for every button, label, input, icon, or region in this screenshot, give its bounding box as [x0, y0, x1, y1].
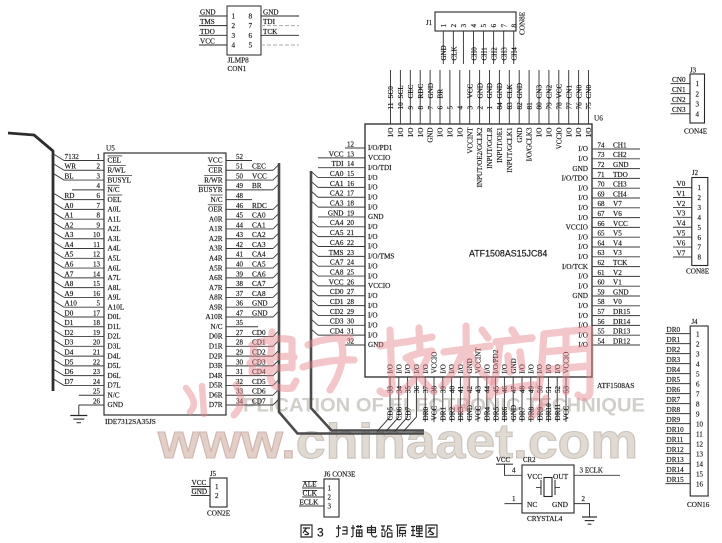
- svg-text:I/O: I/O: [368, 262, 378, 270]
- svg-text:1: 1: [328, 485, 332, 493]
- svg-text:3: 3: [97, 172, 101, 180]
- svg-text:2: 2: [696, 90, 700, 98]
- svg-text:83: 83: [506, 102, 514, 110]
- svg-text:3: 3: [696, 100, 700, 108]
- svg-text:4: 4: [232, 42, 236, 50]
- svg-text:I/O: I/O: [368, 174, 378, 182]
- svg-text:DR3: DR3: [667, 356, 681, 364]
- svg-text:A5: A5: [65, 251, 74, 259]
- svg-text:CON2E: CON2E: [207, 510, 231, 518]
- svg-text:GND: GND: [510, 405, 518, 421]
- svg-text:OUT: OUT: [553, 472, 569, 481]
- svg-text:8: 8: [97, 212, 101, 220]
- svg-text:CD7: CD7: [404, 407, 412, 421]
- svg-text:CA0: CA0: [330, 170, 344, 178]
- svg-text:CON4E: CON4E: [684, 128, 708, 136]
- svg-text:3: 3: [328, 503, 332, 511]
- svg-text:A9: A9: [65, 290, 74, 298]
- svg-text:D0L: D0L: [108, 313, 121, 321]
- svg-text:62: 62: [598, 259, 606, 267]
- svg-text:DR1: DR1: [440, 407, 448, 421]
- svg-text:A0: A0: [65, 202, 74, 210]
- svg-text:VCC: VCC: [563, 406, 571, 421]
- svg-text:CA6: CA6: [330, 239, 344, 247]
- svg-text:V2: V2: [613, 269, 622, 277]
- svg-text:CD6: CD6: [252, 388, 266, 396]
- svg-text:D3L: D3L: [108, 343, 121, 351]
- svg-text:9: 9: [97, 221, 101, 229]
- svg-text:V3: V3: [613, 249, 622, 257]
- svg-text:BUSYL: BUSYL: [108, 176, 132, 184]
- svg-text:DR6: DR6: [667, 386, 681, 394]
- svg-text:CN0: CN0: [672, 76, 686, 84]
- svg-text:CD5: CD5: [252, 378, 266, 386]
- svg-text:10: 10: [696, 420, 704, 428]
- svg-text:RDC: RDC: [252, 202, 267, 210]
- svg-text:V7: V7: [613, 200, 622, 208]
- svg-text:CA5: CA5: [252, 260, 266, 268]
- svg-text:R/WL: R/WL: [108, 166, 126, 174]
- svg-text:CA1: CA1: [330, 180, 344, 188]
- svg-text:V6: V6: [613, 210, 622, 218]
- svg-text:D1L: D1L: [108, 323, 121, 331]
- svg-text:6: 6: [490, 24, 498, 28]
- svg-text:51: 51: [236, 163, 244, 171]
- svg-text:24: 24: [347, 259, 355, 267]
- svg-text:60: 60: [598, 279, 606, 287]
- svg-text:11: 11: [387, 102, 395, 109]
- svg-text:16: 16: [93, 290, 101, 298]
- svg-text:CA3: CA3: [252, 241, 266, 249]
- svg-text:46: 46: [236, 202, 244, 210]
- svg-text:3: 3: [466, 106, 474, 110]
- svg-text:CA8: CA8: [330, 268, 344, 276]
- svg-text:CD1: CD1: [330, 298, 344, 306]
- svg-text:ECLK: ECLK: [585, 468, 603, 475]
- svg-text:A5R: A5R: [209, 264, 223, 272]
- svg-text:A6: A6: [65, 260, 74, 268]
- svg-text:GND: GND: [252, 300, 268, 308]
- svg-text:I/O: I/O: [578, 253, 588, 261]
- svg-text:A4R: A4R: [209, 255, 223, 263]
- svg-text:A9L: A9L: [108, 294, 121, 302]
- svg-text:13: 13: [696, 450, 704, 458]
- svg-text:10: 10: [93, 231, 101, 239]
- svg-text:I/O: I/O: [578, 273, 588, 281]
- svg-text:U5: U5: [106, 145, 115, 153]
- svg-text:VCC: VCC: [252, 172, 267, 180]
- svg-text:2: 2: [232, 22, 236, 30]
- svg-text:DR10: DR10: [545, 403, 553, 421]
- svg-text:TDI: TDI: [332, 160, 345, 168]
- svg-text:1: 1: [696, 80, 700, 88]
- svg-text:13: 13: [347, 150, 355, 158]
- svg-text:29: 29: [347, 308, 355, 316]
- svg-text:I/O: I/O: [578, 282, 588, 290]
- svg-text:50: 50: [236, 172, 244, 180]
- svg-text:RD: RD: [65, 192, 75, 200]
- svg-text:DR5: DR5: [492, 407, 500, 421]
- svg-text:25: 25: [347, 268, 355, 276]
- svg-text:N/C: N/C: [108, 391, 120, 399]
- svg-text:DR15: DR15: [613, 308, 631, 316]
- svg-text:2: 2: [698, 194, 702, 202]
- svg-text:CH4: CH4: [511, 47, 519, 61]
- svg-text:CER: CER: [209, 166, 223, 174]
- svg-text:I/O: I/O: [368, 331, 378, 339]
- svg-text:GND: GND: [613, 161, 629, 169]
- svg-text:12: 12: [93, 251, 101, 259]
- svg-text:14: 14: [696, 460, 704, 468]
- svg-text:D6R: D6R: [209, 391, 223, 399]
- svg-text:3: 3: [460, 24, 468, 28]
- svg-text:I/O: I/O: [546, 128, 554, 137]
- svg-text:A1L: A1L: [108, 215, 121, 223]
- svg-text:BUSYR: BUSYR: [199, 186, 223, 194]
- svg-text:27: 27: [236, 329, 244, 337]
- svg-text:21: 21: [347, 229, 355, 237]
- svg-text:1: 1: [698, 184, 702, 192]
- svg-text:DR13: DR13: [613, 328, 631, 336]
- svg-text:6: 6: [437, 106, 445, 110]
- svg-text:I/O: I/O: [578, 233, 588, 241]
- svg-text:43: 43: [236, 231, 244, 239]
- svg-text:I/O: I/O: [578, 194, 588, 202]
- svg-text:CD5: CD5: [387, 407, 395, 421]
- svg-text:I/O: I/O: [578, 243, 588, 251]
- svg-text:CD7: CD7: [252, 397, 266, 405]
- svg-text:8: 8: [249, 13, 253, 21]
- svg-text:TCK: TCK: [263, 28, 278, 36]
- svg-text:CLK: CLK: [506, 83, 514, 98]
- svg-text:VCC: VCC: [556, 84, 564, 99]
- svg-text:GND: GND: [200, 9, 216, 17]
- svg-text:7: 7: [698, 244, 702, 252]
- svg-text:1: 1: [486, 106, 494, 110]
- svg-text:GND: GND: [572, 292, 588, 300]
- svg-text:GND: GND: [486, 83, 494, 99]
- svg-text:2: 2: [450, 24, 458, 28]
- svg-text:5: 5: [97, 300, 101, 308]
- svg-text:4: 4: [97, 182, 101, 190]
- svg-text:6: 6: [97, 192, 101, 200]
- svg-text:DR9: DR9: [667, 416, 681, 424]
- svg-text:VCCINT: VCCINT: [466, 127, 474, 154]
- svg-text:CA0: CA0: [252, 212, 266, 220]
- svg-text:GND: GND: [516, 128, 524, 143]
- svg-text:J5: J5: [210, 471, 217, 478]
- svg-text:I/O: I/O: [578, 302, 588, 310]
- svg-text:I/O: I/O: [437, 128, 445, 137]
- svg-text:43: 43: [475, 386, 483, 394]
- svg-text:DR15: DR15: [667, 476, 685, 484]
- svg-text:18: 18: [93, 319, 101, 327]
- svg-text:D4R: D4R: [209, 372, 223, 380]
- svg-text:CA3: CA3: [330, 200, 344, 208]
- svg-text:VCCIO: VCCIO: [368, 282, 390, 290]
- svg-text:I/O/TMS: I/O/TMS: [368, 253, 394, 261]
- svg-text:I/O: I/O: [439, 364, 447, 373]
- svg-text:GND: GND: [613, 288, 629, 296]
- svg-text:GND: GND: [552, 500, 569, 509]
- svg-text:CD0: CD0: [252, 329, 266, 337]
- svg-text:21: 21: [93, 349, 101, 357]
- svg-text:I/O/PD1: I/O/PD1: [368, 144, 393, 152]
- svg-text:CA5: CA5: [330, 229, 344, 237]
- svg-text:A2L: A2L: [108, 225, 121, 233]
- svg-text:25: 25: [93, 388, 101, 396]
- svg-text:I/O: I/O: [368, 312, 378, 320]
- svg-text:31: 31: [236, 368, 244, 376]
- svg-text:D7R: D7R: [209, 401, 223, 409]
- svg-text:2: 2: [97, 163, 101, 171]
- svg-text:5: 5: [249, 42, 253, 50]
- svg-text:I/O: I/O: [585, 128, 593, 137]
- svg-text:22: 22: [93, 358, 101, 366]
- svg-text:CH1: CH1: [613, 141, 627, 149]
- svg-text:J6 CON3E: J6 CON3E: [324, 471, 356, 479]
- svg-text:CN2: CN2: [546, 85, 554, 99]
- svg-text:I/O: I/O: [578, 312, 588, 320]
- svg-text:D2R: D2R: [209, 352, 223, 360]
- svg-text:CH4: CH4: [613, 190, 627, 198]
- svg-text:1: 1: [512, 495, 516, 503]
- svg-text:41: 41: [236, 251, 244, 259]
- svg-text:26: 26: [93, 397, 101, 405]
- svg-text:A10R: A10R: [205, 313, 222, 321]
- svg-text:GND: GND: [427, 83, 435, 99]
- svg-text:6: 6: [698, 234, 702, 242]
- svg-text:20: 20: [93, 339, 101, 347]
- svg-text:D1R: D1R: [209, 343, 223, 351]
- svg-text:18: 18: [347, 200, 355, 208]
- svg-text:CH3: CH3: [501, 47, 509, 61]
- svg-text:D3: D3: [65, 339, 74, 347]
- svg-text:CN1: CN1: [565, 85, 573, 99]
- svg-text:CD2: CD2: [330, 308, 344, 316]
- svg-text:OEL: OEL: [108, 196, 122, 204]
- svg-text:DR8: DR8: [667, 406, 681, 414]
- svg-text:2: 2: [476, 106, 484, 110]
- svg-text:A4L: A4L: [108, 245, 121, 253]
- svg-text:17: 17: [93, 309, 101, 317]
- svg-text:CD6: CD6: [396, 407, 404, 421]
- svg-text:ATF1508AS15JC84: ATF1508AS15JC84: [469, 249, 547, 259]
- svg-text:CA1: CA1: [252, 221, 266, 229]
- svg-text:D7L: D7L: [108, 382, 121, 390]
- svg-text:INPUT/GCLR: INPUT/GCLR: [486, 127, 494, 169]
- svg-text:A6R: A6R: [209, 274, 223, 282]
- svg-text:A5L: A5L: [108, 255, 121, 263]
- svg-text:I/O: I/O: [578, 214, 588, 222]
- svg-text:I/O: I/O: [368, 184, 378, 192]
- svg-text:V4: V4: [613, 239, 622, 247]
- svg-text:CON8E: CON8E: [686, 268, 710, 276]
- svg-text:I/O: I/O: [456, 128, 464, 137]
- svg-text:A10: A10: [65, 300, 78, 308]
- svg-text:12: 12: [696, 440, 704, 448]
- svg-text:GND: GND: [263, 9, 279, 17]
- svg-text:16: 16: [347, 180, 355, 188]
- svg-text:7: 7: [500, 24, 508, 28]
- svg-text:TDO: TDO: [613, 171, 628, 179]
- svg-text:DR0: DR0: [667, 326, 681, 334]
- svg-text:4: 4: [696, 360, 700, 368]
- svg-text:D4L: D4L: [108, 352, 121, 360]
- svg-text:4: 4: [470, 24, 478, 28]
- svg-text:9: 9: [407, 106, 415, 110]
- svg-text:V3: V3: [677, 210, 686, 218]
- svg-text:3: 3: [232, 32, 236, 40]
- svg-text:DR2: DR2: [667, 346, 681, 354]
- svg-text:77: 77: [565, 102, 573, 110]
- svg-text:CA8: CA8: [252, 290, 266, 298]
- svg-text:52: 52: [236, 153, 244, 161]
- svg-text:I/O: I/O: [536, 128, 544, 137]
- svg-text:SC0: SC0: [387, 86, 395, 99]
- svg-text:CN0: CN0: [585, 85, 593, 99]
- svg-text:30: 30: [347, 318, 355, 326]
- svg-text:78: 78: [556, 102, 564, 110]
- svg-text:V0: V0: [613, 298, 622, 306]
- svg-text:40: 40: [448, 386, 456, 394]
- svg-text:I/O/TDO: I/O/TDO: [562, 175, 588, 183]
- svg-text:38: 38: [236, 280, 244, 288]
- svg-text:79: 79: [546, 102, 554, 110]
- svg-text:BR: BR: [437, 89, 445, 99]
- svg-text:69: 69: [598, 190, 606, 198]
- svg-text:80: 80: [536, 102, 544, 110]
- svg-text:www.chinaaet.com: www.chinaaet.com: [157, 415, 638, 469]
- svg-text:SCL: SCL: [397, 85, 405, 98]
- svg-text:30: 30: [236, 358, 244, 366]
- svg-text:66: 66: [598, 220, 606, 228]
- svg-text:CN3: CN3: [536, 85, 544, 99]
- svg-text:D5L: D5L: [108, 362, 121, 370]
- svg-text:GND: GND: [108, 401, 124, 409]
- svg-text:67: 67: [598, 210, 606, 218]
- svg-text:VCCIO: VCCIO: [368, 154, 390, 162]
- svg-text:DR11: DR11: [667, 436, 684, 444]
- svg-text:CH1: CH1: [480, 47, 488, 61]
- svg-text:14: 14: [347, 160, 355, 168]
- svg-text:NC: NC: [527, 500, 537, 509]
- svg-text:I/O: I/O: [417, 128, 425, 137]
- svg-text:BL: BL: [65, 172, 74, 180]
- svg-text:DR11: DR11: [554, 403, 562, 420]
- svg-text:29: 29: [236, 349, 244, 357]
- svg-text:13: 13: [93, 260, 101, 268]
- svg-text:57: 57: [598, 308, 606, 316]
- svg-text:I/O: I/O: [407, 128, 415, 137]
- svg-text:12: 12: [347, 140, 355, 148]
- svg-text:27: 27: [347, 288, 355, 296]
- svg-text:DR12: DR12: [613, 337, 631, 345]
- svg-text:A1R: A1R: [209, 225, 223, 233]
- svg-text:GND: GND: [572, 165, 588, 173]
- svg-text:VCCIO: VCCIO: [555, 128, 563, 150]
- svg-text:65: 65: [598, 230, 606, 238]
- svg-text:7: 7: [249, 22, 253, 30]
- svg-text:A3R: A3R: [209, 245, 223, 253]
- svg-text:CN1: CN1: [672, 86, 686, 94]
- svg-text:28: 28: [347, 298, 355, 306]
- svg-text:GND: GND: [496, 83, 504, 99]
- svg-text:22: 22: [347, 239, 355, 247]
- svg-text:75: 75: [585, 102, 593, 110]
- svg-text:I/O: I/O: [578, 155, 588, 163]
- svg-text:73: 73: [598, 151, 606, 159]
- svg-text:CA4: CA4: [330, 219, 344, 227]
- svg-text:I/O: I/O: [387, 128, 395, 137]
- svg-text:A8R: A8R: [209, 294, 223, 302]
- svg-text:CD3: CD3: [330, 318, 344, 326]
- svg-text:CA7: CA7: [330, 259, 344, 267]
- svg-text:VCC: VCC: [431, 406, 439, 421]
- svg-text:I/O: I/O: [368, 292, 378, 300]
- svg-text:I/O: I/O: [575, 128, 583, 137]
- svg-text:CEL: CEL: [108, 157, 122, 165]
- svg-text:CA7: CA7: [252, 280, 266, 288]
- svg-text:7: 7: [427, 106, 435, 110]
- svg-text:3: 3: [317, 526, 324, 540]
- svg-text:DR7: DR7: [519, 407, 527, 421]
- svg-text:I/O: I/O: [368, 193, 378, 201]
- svg-text:11: 11: [696, 430, 703, 438]
- svg-text:OER: OER: [208, 206, 223, 214]
- svg-text:1: 1: [215, 483, 219, 491]
- svg-text:D7: D7: [65, 378, 74, 386]
- svg-text:DR1: DR1: [667, 336, 681, 344]
- svg-text:3: 3: [698, 204, 702, 212]
- svg-text:DR6: DR6: [501, 407, 509, 421]
- svg-text:4: 4: [698, 214, 702, 222]
- svg-text:N/C: N/C: [211, 196, 223, 204]
- svg-text:INPUT/OE1: INPUT/OE1: [496, 127, 504, 163]
- svg-text:40: 40: [236, 260, 244, 268]
- svg-text:70: 70: [598, 181, 606, 189]
- svg-text:58: 58: [598, 298, 606, 306]
- svg-text:A4: A4: [65, 241, 74, 249]
- svg-text:I/O: I/O: [368, 322, 378, 330]
- svg-text:A10L: A10L: [108, 303, 125, 311]
- svg-text:JLMP8: JLMP8: [228, 57, 250, 65]
- svg-text:V4: V4: [677, 220, 686, 228]
- svg-text:U6: U6: [594, 115, 603, 123]
- svg-text:CH0: CH0: [470, 47, 478, 61]
- svg-text:GND: GND: [328, 209, 344, 217]
- svg-text:8: 8: [696, 400, 700, 408]
- svg-text:82: 82: [516, 102, 524, 110]
- svg-text:26: 26: [347, 278, 355, 286]
- svg-text:A1: A1: [65, 212, 74, 220]
- svg-text:2: 2: [328, 494, 332, 502]
- svg-text:A6L: A6L: [108, 264, 121, 272]
- svg-text:CON1: CON1: [228, 65, 247, 73]
- svg-text:2: 2: [582, 495, 586, 503]
- svg-text:42: 42: [236, 241, 244, 249]
- svg-text:74: 74: [598, 141, 606, 149]
- svg-text:ATF1508AS: ATF1508AS: [597, 381, 634, 390]
- svg-text:D2L: D2L: [108, 333, 121, 341]
- svg-text:GND: GND: [252, 309, 268, 317]
- svg-text:A3L: A3L: [108, 235, 121, 243]
- svg-text:11: 11: [93, 241, 100, 249]
- svg-text:CA6: CA6: [252, 270, 266, 278]
- svg-text:DR14: DR14: [667, 466, 685, 474]
- svg-text:VCC: VCC: [208, 157, 223, 165]
- svg-text:I/O: I/O: [447, 128, 455, 137]
